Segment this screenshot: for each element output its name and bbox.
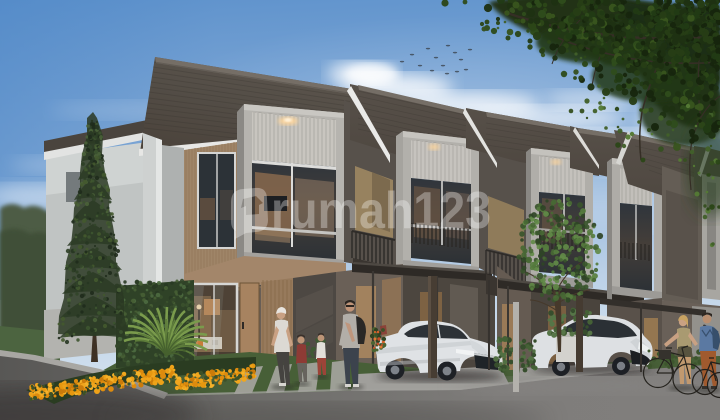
svg-text:rumah123: rumah123 — [271, 182, 491, 240]
